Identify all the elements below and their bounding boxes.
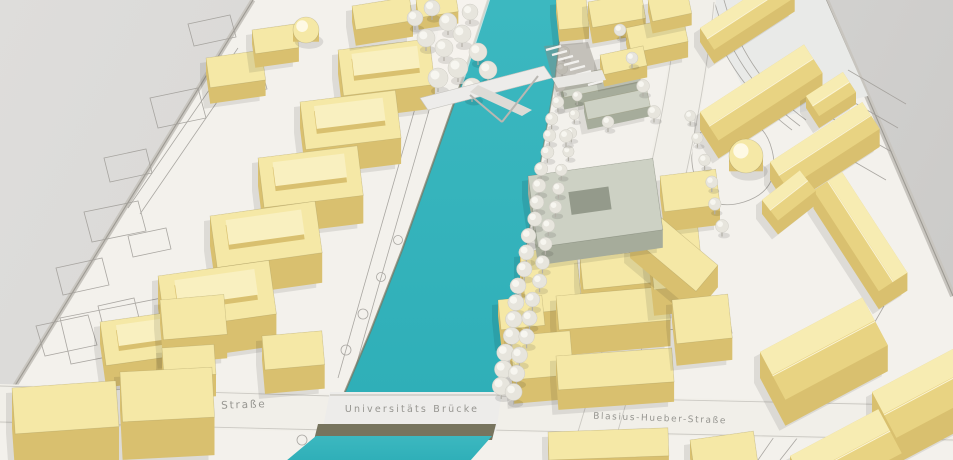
tree-highlight xyxy=(481,63,489,71)
tree-highlight xyxy=(499,346,507,354)
dome-highlight xyxy=(733,143,748,158)
tree-highlight xyxy=(573,92,578,97)
tree-highlight xyxy=(505,330,513,338)
tree-highlight xyxy=(527,294,534,301)
tree-shadow xyxy=(565,158,575,163)
street-name-left: Straße xyxy=(221,398,267,412)
tree-highlight xyxy=(534,276,540,282)
tree-highlight xyxy=(419,31,427,39)
tree-highlight xyxy=(628,54,633,59)
model-scene: Straße Universitäts Brücke Blasius-Huebe… xyxy=(0,0,953,460)
tree-highlight xyxy=(523,230,530,237)
tree-highlight xyxy=(494,379,502,387)
model-photo: Straße Universitäts Brücke Blasius-Huebe… xyxy=(0,0,953,460)
tree-highlight xyxy=(686,112,691,117)
tree-highlight xyxy=(649,107,655,113)
tree-highlight xyxy=(717,221,723,227)
tree-highlight xyxy=(604,118,609,123)
tree-shadow xyxy=(465,19,479,26)
tree-highlight xyxy=(534,180,540,186)
tree-highlight xyxy=(707,177,712,182)
tree-shadow xyxy=(639,93,651,99)
tree-highlight xyxy=(536,164,542,170)
tree-highlight xyxy=(551,202,557,208)
tree-shadow xyxy=(554,108,565,113)
tree-highlight xyxy=(638,81,644,87)
tree-shadow xyxy=(508,400,523,408)
building-block xyxy=(12,381,119,434)
tree-shadow xyxy=(650,119,662,125)
tree-highlight xyxy=(529,214,536,221)
tree-shadow xyxy=(701,166,712,171)
tree-highlight xyxy=(540,239,546,245)
tree-highlight xyxy=(497,363,505,371)
tree-highlight xyxy=(561,131,567,137)
tree-highlight xyxy=(542,147,548,153)
tree-highlight xyxy=(513,349,520,356)
tree-highlight xyxy=(426,2,433,9)
tree-highlight xyxy=(532,197,538,203)
tree-shadow xyxy=(552,213,563,219)
tree-shadow xyxy=(617,36,628,41)
tree-highlight xyxy=(547,114,553,120)
tree-highlight xyxy=(464,6,471,13)
tree-highlight xyxy=(537,257,543,263)
tree-highlight xyxy=(700,156,705,161)
tree-highlight xyxy=(518,263,525,270)
tree-highlight xyxy=(545,131,551,137)
building-block xyxy=(672,294,732,344)
tree-highlight xyxy=(521,331,528,338)
tree-highlight xyxy=(521,247,528,254)
tree-highlight xyxy=(543,221,549,227)
tree-highlight xyxy=(710,199,716,205)
river-lower xyxy=(286,436,492,460)
building-block xyxy=(160,294,227,339)
tree-highlight xyxy=(553,98,558,103)
bridge-name-label: Universitäts Brücke xyxy=(345,404,479,415)
tree-highlight xyxy=(471,45,479,53)
building-block xyxy=(262,331,325,370)
tree-shadow xyxy=(711,210,722,216)
tree-highlight xyxy=(431,71,440,80)
building-block xyxy=(120,367,215,422)
building-block xyxy=(548,428,669,460)
tree-highlight xyxy=(451,61,460,70)
tree-shadow xyxy=(575,102,584,107)
tree-shadow xyxy=(562,143,574,149)
tree-shadow xyxy=(605,128,616,133)
tree-highlight xyxy=(508,313,515,320)
tree-shadow xyxy=(687,122,697,127)
tree-shadow xyxy=(629,64,640,69)
tree-shadow xyxy=(708,188,719,193)
tree-highlight xyxy=(510,296,517,303)
tree-highlight xyxy=(512,280,519,287)
tree-highlight xyxy=(437,41,445,49)
tree-highlight xyxy=(616,26,621,31)
tree-highlight xyxy=(570,111,575,116)
tree-highlight xyxy=(409,12,416,19)
tree-highlight xyxy=(693,134,698,139)
tree-highlight xyxy=(441,15,449,23)
tree-shadow xyxy=(694,144,704,149)
tree-highlight xyxy=(554,184,559,189)
tree-highlight xyxy=(557,166,562,171)
tree-highlight xyxy=(455,27,463,35)
tree-shadow xyxy=(718,233,730,239)
tree-highlight xyxy=(507,386,515,394)
tree-shadow xyxy=(555,195,566,200)
dome-highlight xyxy=(296,20,308,32)
tree-highlight xyxy=(524,312,531,319)
tree-shadow xyxy=(558,176,569,181)
tree-highlight xyxy=(510,367,517,374)
tree-shadow xyxy=(420,46,436,54)
tree-shadow xyxy=(572,120,581,125)
